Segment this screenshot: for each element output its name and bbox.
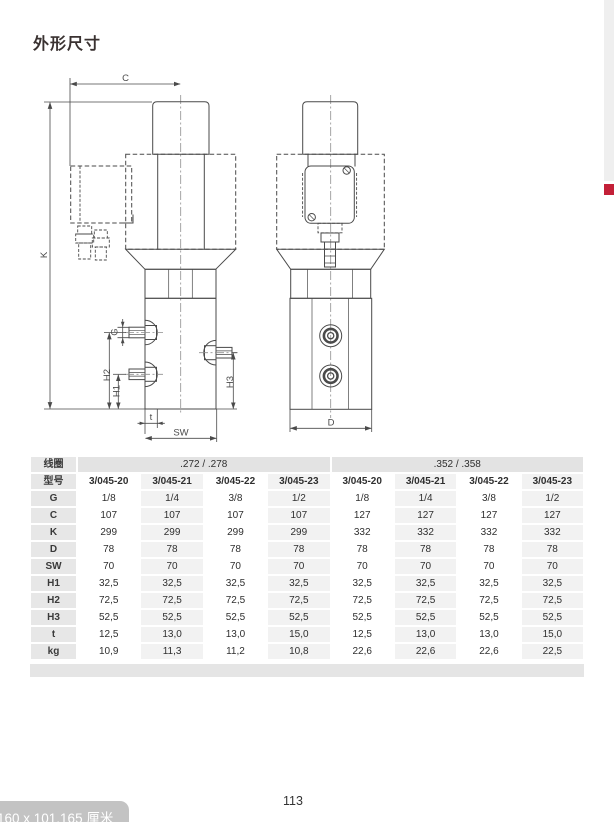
dim-label-h2: H2 — [102, 369, 113, 381]
value-cell: 11,3 — [140, 643, 203, 660]
value-cell: 72,5 — [457, 592, 520, 609]
model-cell: 3/045-20 — [77, 473, 140, 490]
value-cell: 52,5 — [521, 609, 584, 626]
value-cell: 70 — [457, 558, 520, 575]
red-tab-marker — [604, 184, 614, 195]
value-cell: 32,5 — [77, 575, 140, 592]
hex-facets — [308, 269, 353, 298]
dim-label-c: C — [122, 73, 129, 84]
row-label-c: C — [30, 507, 77, 524]
value-cell: 70 — [140, 558, 203, 575]
row-label-model: 型号 — [30, 473, 77, 490]
value-cell: 52,5 — [331, 609, 394, 626]
dim-label-d: D — [328, 418, 335, 429]
valve-side-view — [277, 95, 385, 432]
value-cell: 72,5 — [267, 592, 330, 609]
value-cell: 3/8 — [204, 490, 267, 507]
value-cell: 12,5 — [77, 626, 140, 643]
row-label-g: G — [30, 490, 77, 507]
dim-label-k: K — [39, 251, 50, 258]
dimensions-table: 线圈.272 / .278.352 / .358型号3/045-203/045-… — [30, 456, 584, 660]
value-cell: 107 — [267, 507, 330, 524]
dimension-lines-front — [44, 78, 238, 442]
solenoid-stem — [308, 154, 355, 166]
value-cell: 332 — [457, 524, 520, 541]
value-cell: 78 — [457, 541, 520, 558]
value-cell: 15,0 — [521, 626, 584, 643]
value-cell: 127 — [394, 507, 457, 524]
value-cell: 78 — [521, 541, 584, 558]
page-edge-strip — [604, 0, 614, 181]
coil-screws — [308, 167, 350, 221]
value-cell: 32,5 — [521, 575, 584, 592]
value-cell: 78 — [267, 541, 330, 558]
dim-label-h1: H1 — [112, 385, 123, 397]
row-label-t: t — [30, 626, 77, 643]
row-label-h2: H2 — [30, 592, 77, 609]
value-cell: 3/8 — [457, 490, 520, 507]
value-cell: 11,2 — [204, 643, 267, 660]
value-cell: 127 — [521, 507, 584, 524]
value-cell: 52,5 — [457, 609, 520, 626]
value-cell: 72,5 — [204, 592, 267, 609]
value-cell: 52,5 — [267, 609, 330, 626]
value-cell: 52,5 — [77, 609, 140, 626]
value-cell: 22,6 — [331, 643, 394, 660]
model-cell: 3/045-22 — [204, 473, 267, 490]
model-cell: 3/045-23 — [267, 473, 330, 490]
value-cell: 1/4 — [394, 490, 457, 507]
row-label-k: K — [30, 524, 77, 541]
value-cell: 70 — [331, 558, 394, 575]
value-cell: 70 — [204, 558, 267, 575]
size-tooltip: 160 x 101,165 厘米 — [0, 801, 129, 822]
value-cell: 12,5 — [331, 626, 394, 643]
value-cell: 72,5 — [331, 592, 394, 609]
value-cell: 78 — [331, 541, 394, 558]
value-cell: 78 — [140, 541, 203, 558]
dim-label-h3: H3 — [225, 376, 236, 388]
value-cell: 32,5 — [267, 575, 330, 592]
row-label-sw: SW — [30, 558, 77, 575]
value-cell: 13,0 — [457, 626, 520, 643]
value-cell: 10,9 — [77, 643, 140, 660]
value-cell: 70 — [521, 558, 584, 575]
value-cell: 127 — [331, 507, 394, 524]
value-cell: 10,8 — [267, 643, 330, 660]
row-label-h3: H3 — [30, 609, 77, 626]
table-footer-strip — [30, 664, 584, 677]
value-cell: 72,5 — [140, 592, 203, 609]
value-cell: 15,0 — [267, 626, 330, 643]
value-cell: 13,0 — [204, 626, 267, 643]
value-cell: 22,6 — [457, 643, 520, 660]
body-bore-lines — [312, 298, 349, 409]
value-cell: 13,0 — [140, 626, 203, 643]
value-cell: 52,5 — [140, 609, 203, 626]
value-cell: 1/8 — [77, 490, 140, 507]
row-label-h1: H1 — [30, 575, 77, 592]
value-cell: 127 — [457, 507, 520, 524]
terminal-stack — [318, 223, 342, 267]
dim-label-t: t — [150, 412, 153, 423]
dim-label-sw: SW — [173, 428, 188, 439]
value-cell: 78 — [394, 541, 457, 558]
row-label-kg: kg — [30, 643, 77, 660]
model-cell: 3/045-22 — [457, 473, 520, 490]
value-cell: 32,5 — [140, 575, 203, 592]
value-cell: 1/4 — [140, 490, 203, 507]
value-cell: 22,6 — [394, 643, 457, 660]
dim-label-g: G — [110, 328, 121, 335]
value-cell: 70 — [267, 558, 330, 575]
value-cell: 22,5 — [521, 643, 584, 660]
value-cell: 72,5 — [394, 592, 457, 609]
value-cell: 299 — [77, 524, 140, 541]
value-cell: 332 — [521, 524, 584, 541]
value-cell: 70 — [394, 558, 457, 575]
value-cell: 107 — [77, 507, 140, 524]
value-cell: 13,0 — [394, 626, 457, 643]
value-cell: 78 — [204, 541, 267, 558]
value-cell: 32,5 — [331, 575, 394, 592]
coil-group-1: .272 / .278 — [77, 456, 331, 473]
value-cell: 332 — [394, 524, 457, 541]
coil-side-hidden — [303, 173, 357, 217]
model-cell: 3/045-21 — [140, 473, 203, 490]
row-label-d: D — [30, 541, 77, 558]
value-cell: 52,5 — [394, 609, 457, 626]
value-cell: 299 — [267, 524, 330, 541]
value-cell: 52,5 — [204, 609, 267, 626]
value-cell: 107 — [204, 507, 267, 524]
value-cell: 107 — [140, 507, 203, 524]
dimension-drawings: C K G H2 H1 H3 t SW D — [30, 60, 430, 460]
port-h1 — [125, 362, 163, 387]
port-g — [125, 320, 163, 345]
value-cell: 72,5 — [521, 592, 584, 609]
solenoid-cap — [303, 102, 358, 155]
value-cell: 72,5 — [77, 592, 140, 609]
value-cell: 1/8 — [331, 490, 394, 507]
connector-terminals — [76, 226, 110, 260]
page-title: 外形尺寸 — [33, 30, 101, 54]
model-cell: 3/045-23 — [521, 473, 584, 490]
model-cell: 3/045-21 — [394, 473, 457, 490]
value-cell: 299 — [140, 524, 203, 541]
value-cell: 32,5 — [394, 575, 457, 592]
value-cell: 299 — [204, 524, 267, 541]
catalog-page: 外形尺寸 — [0, 0, 614, 822]
value-cell: 70 — [77, 558, 140, 575]
value-cell: 332 — [331, 524, 394, 541]
value-cell: 1/2 — [267, 490, 330, 507]
value-cell: 1/2 — [521, 490, 584, 507]
valve-front-view — [44, 78, 238, 442]
dimensions-table-body: 线圈.272 / .278.352 / .358型号3/045-203/045-… — [30, 456, 584, 660]
port-h3 — [199, 340, 237, 365]
value-cell: 32,5 — [457, 575, 520, 592]
coil-group-2: .352 / .358 — [331, 456, 585, 473]
value-cell: 78 — [77, 541, 140, 558]
row-label-coil: 线圈 — [30, 456, 77, 473]
value-cell: 32,5 — [204, 575, 267, 592]
model-cell: 3/045-20 — [331, 473, 394, 490]
